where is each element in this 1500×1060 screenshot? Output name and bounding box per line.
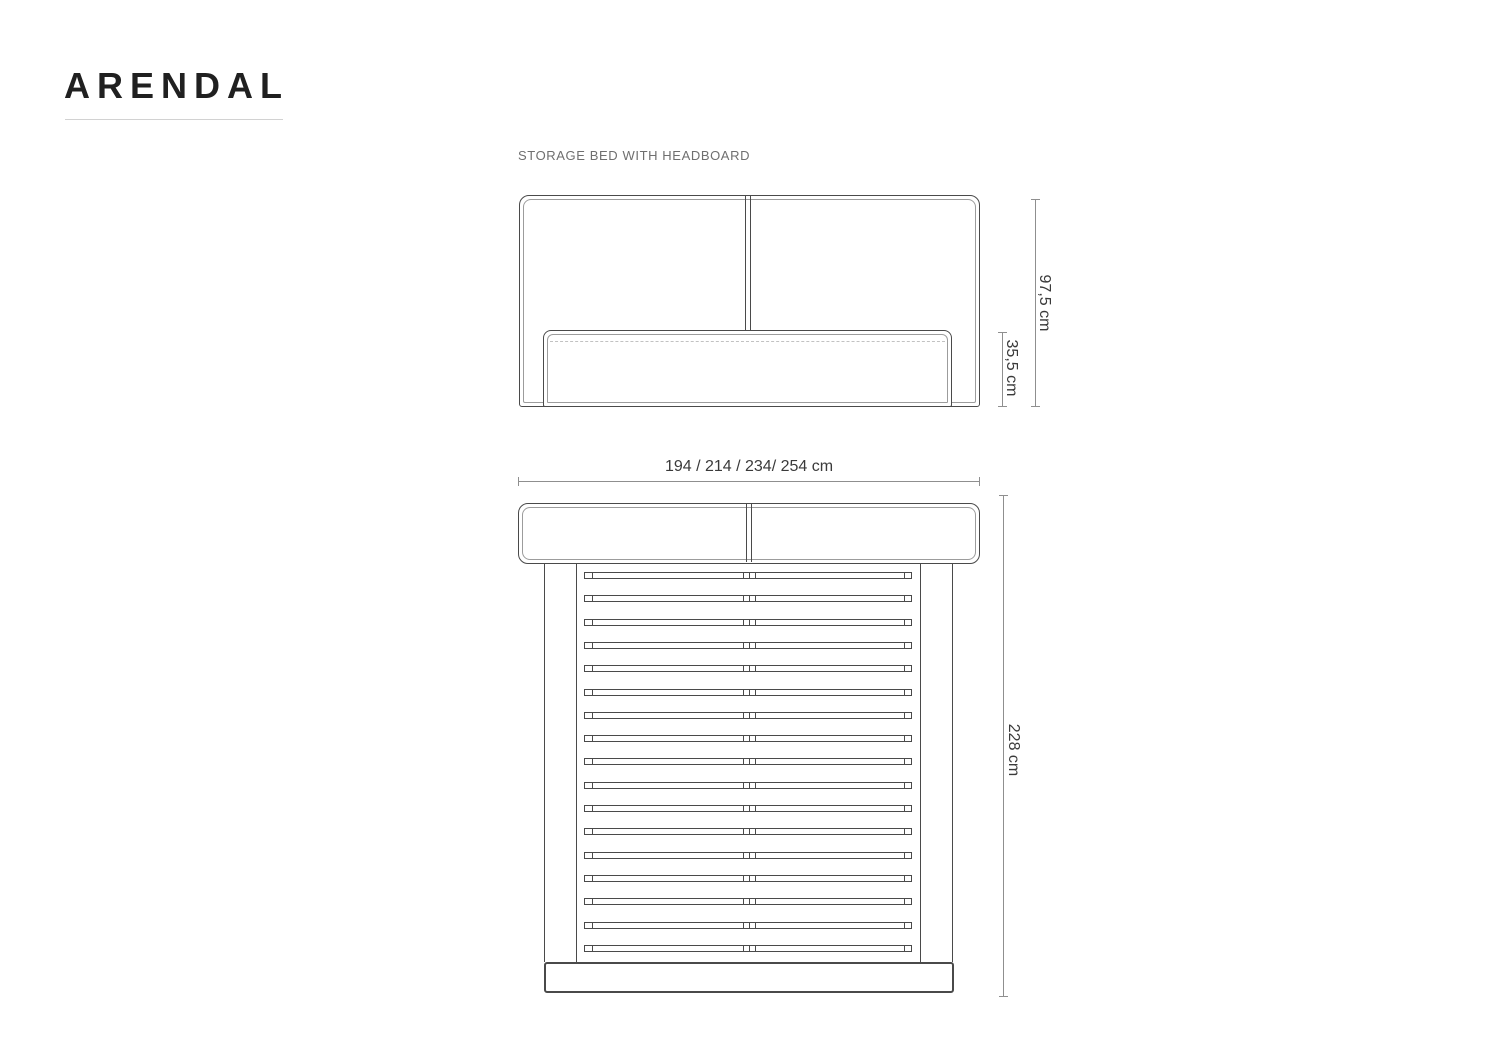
slat-row [584, 619, 912, 626]
slat-end-mark [904, 713, 905, 718]
slat-end-mark [592, 596, 593, 601]
slat-end-mark [743, 713, 744, 718]
dim-label-frame-height: 35,5 cm [1003, 338, 1019, 398]
bedframe-front [543, 330, 952, 407]
slat-end-mark [749, 853, 750, 858]
side-rail-right [920, 564, 953, 962]
headboard-seam-front [745, 196, 751, 331]
slat-row [584, 642, 912, 649]
slat-end-mark [743, 620, 744, 625]
page-title: ARENDAL [64, 66, 289, 106]
slat-end-mark [904, 946, 905, 951]
slat-end-mark [755, 666, 756, 671]
slat-end-mark [592, 946, 593, 951]
slat-end-mark [755, 829, 756, 834]
slat-end-mark [743, 783, 744, 788]
spec-sheet: ARENDAL STORAGE BED WITH HEADBOARD 97,5 … [0, 0, 1500, 1060]
dim-tick [999, 495, 1008, 496]
slat-row [584, 595, 912, 602]
slat-end-mark [755, 946, 756, 951]
slat-row [584, 922, 912, 929]
slat-end-mark [592, 783, 593, 788]
slat-end-mark [592, 853, 593, 858]
slat-end-mark [743, 690, 744, 695]
slat-end-mark [749, 596, 750, 601]
slat-end-mark [749, 666, 750, 671]
slat-end-mark [904, 853, 905, 858]
slat-end-mark [904, 876, 905, 881]
slat-end-mark [755, 690, 756, 695]
slat-end-mark [755, 620, 756, 625]
slat-end-mark [743, 923, 744, 928]
slat-row [584, 735, 912, 742]
slat-end-mark [904, 806, 905, 811]
slat-end-mark [755, 759, 756, 764]
slat-end-mark [743, 899, 744, 904]
slat-row [584, 875, 912, 882]
slat-end-mark [904, 620, 905, 625]
slat-end-mark [592, 713, 593, 718]
slat-row [584, 758, 912, 765]
slat-end-mark [743, 946, 744, 951]
slat-end-mark [755, 573, 756, 578]
slat-end-mark [592, 736, 593, 741]
dim-tick [998, 406, 1007, 407]
slat-end-mark [755, 923, 756, 928]
slat-end-mark [743, 806, 744, 811]
title-underline [65, 119, 283, 120]
slat-end-mark [592, 876, 593, 881]
dim-line-length [1003, 495, 1004, 997]
dim-tick [999, 996, 1008, 997]
slat-row [584, 782, 912, 789]
dim-label-total-height: 97,5 cm [1036, 273, 1052, 333]
slat-row [584, 572, 912, 579]
slat-end-mark [755, 876, 756, 881]
dim-label-width: 194 / 214 / 234/ 254 cm [649, 459, 849, 475]
slat-end-mark [592, 899, 593, 904]
slat-end-mark [749, 690, 750, 695]
slat-end-mark [749, 759, 750, 764]
headboard-seam-top [746, 504, 752, 562]
slat-row [584, 805, 912, 812]
slat-end-mark [904, 736, 905, 741]
slat-end-mark [904, 596, 905, 601]
slat-end-mark [743, 666, 744, 671]
dim-tick [979, 477, 980, 486]
slat-end-mark [904, 829, 905, 834]
slat-end-mark [743, 759, 744, 764]
slat-end-mark [749, 806, 750, 811]
slat-end-mark [592, 806, 593, 811]
slat-end-mark [749, 643, 750, 648]
slat-end-mark [743, 643, 744, 648]
footboard [544, 962, 954, 993]
slat-end-mark [749, 923, 750, 928]
slat-end-mark [755, 643, 756, 648]
bedframe-front-inner-line [547, 334, 948, 403]
slat-end-mark [592, 923, 593, 928]
slat-end-mark [755, 806, 756, 811]
slat-end-mark [749, 783, 750, 788]
slat-end-mark [743, 573, 744, 578]
slat-end-mark [749, 713, 750, 718]
slat-end-mark [904, 666, 905, 671]
slat-end-mark [743, 596, 744, 601]
slat-end-mark [592, 620, 593, 625]
slat-end-mark [749, 829, 750, 834]
side-rail-left [544, 564, 577, 962]
slat-row [584, 665, 912, 672]
dim-tick [1031, 406, 1040, 407]
slat-end-mark [904, 783, 905, 788]
slat-end-mark [904, 573, 905, 578]
bedframe-stitch-line [550, 341, 945, 342]
dim-label-length: 228 cm [1005, 720, 1021, 780]
slat-end-mark [592, 643, 593, 648]
slat-end-mark [592, 666, 593, 671]
slat-end-mark [749, 736, 750, 741]
slat-end-mark [743, 736, 744, 741]
slat-row [584, 945, 912, 952]
dim-tick [518, 477, 519, 486]
slat-end-mark [904, 923, 905, 928]
slat-end-mark [755, 899, 756, 904]
slat-end-mark [749, 899, 750, 904]
slat-end-mark [904, 690, 905, 695]
slat-area [577, 564, 920, 962]
slat-row [584, 852, 912, 859]
slat-row [584, 689, 912, 696]
dim-line-width [518, 481, 980, 482]
slat-end-mark [755, 736, 756, 741]
dim-tick [1031, 199, 1040, 200]
slat-end-mark [755, 853, 756, 858]
slat-row [584, 828, 912, 835]
slat-end-mark [904, 643, 905, 648]
slat-end-mark [755, 596, 756, 601]
slat-end-mark [749, 946, 750, 951]
slat-end-mark [749, 876, 750, 881]
dim-tick [998, 332, 1007, 333]
slat-end-mark [749, 573, 750, 578]
slat-end-mark [743, 876, 744, 881]
slat-end-mark [743, 853, 744, 858]
slat-row [584, 898, 912, 905]
slat-end-mark [592, 759, 593, 764]
drawing-subtitle: STORAGE BED WITH HEADBOARD [518, 148, 750, 163]
slat-end-mark [743, 829, 744, 834]
slat-end-mark [749, 620, 750, 625]
slat-end-mark [592, 573, 593, 578]
slat-end-mark [755, 713, 756, 718]
slat-end-mark [592, 690, 593, 695]
slat-end-mark [904, 899, 905, 904]
slat-end-mark [592, 829, 593, 834]
slat-end-mark [904, 759, 905, 764]
slat-end-mark [755, 783, 756, 788]
slat-row [584, 712, 912, 719]
